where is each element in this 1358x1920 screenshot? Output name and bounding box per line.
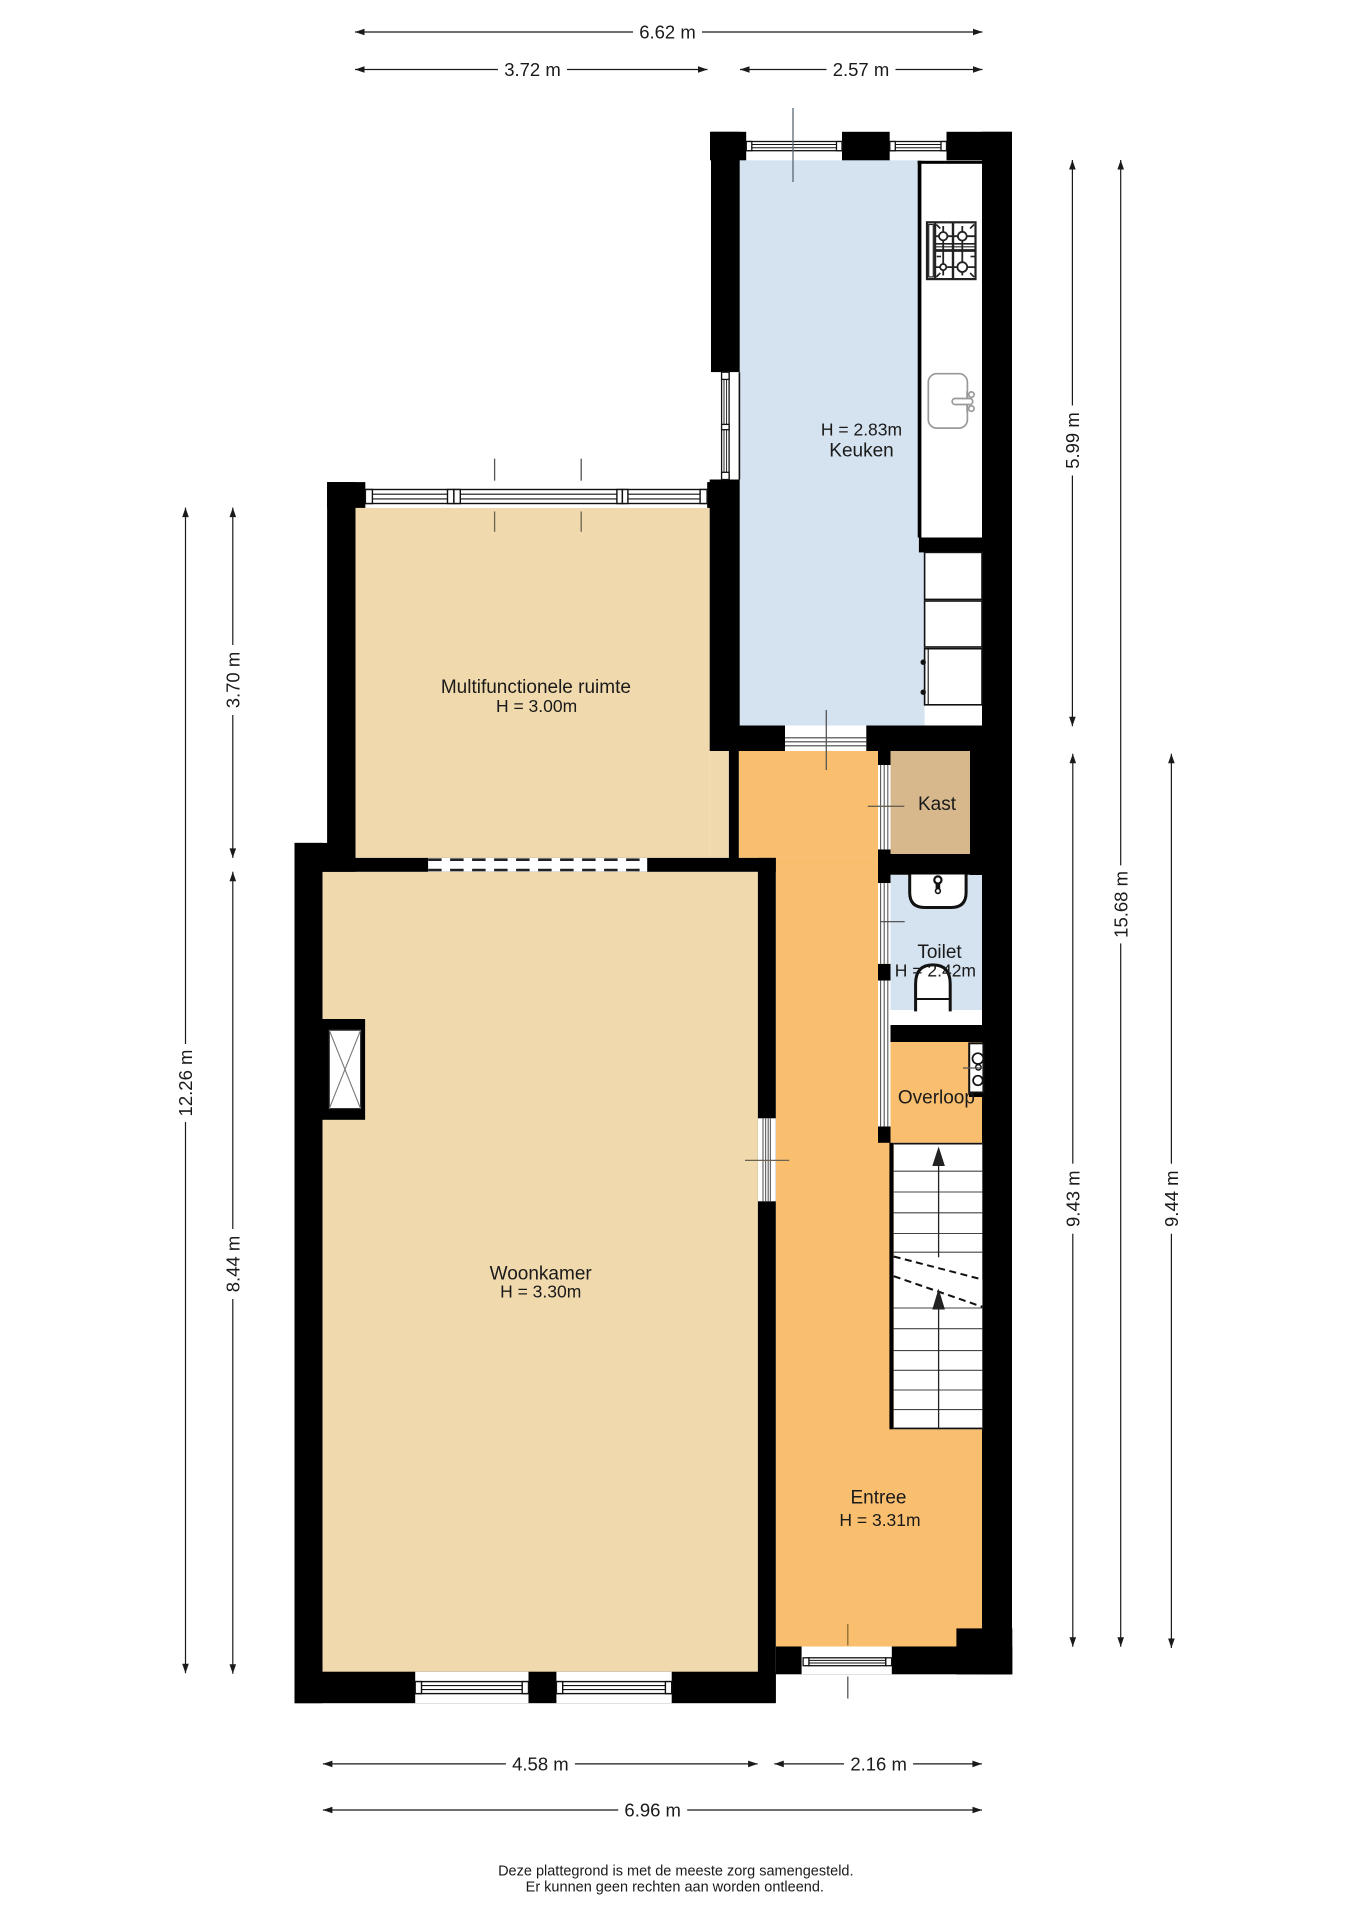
svg-text:3.70 m: 3.70 m <box>222 652 243 709</box>
svg-text:5.99 m: 5.99 m <box>1062 412 1083 469</box>
svg-text:9.43 m: 9.43 m <box>1062 1170 1083 1227</box>
svg-text:H = 2.42m: H = 2.42m <box>895 961 976 981</box>
svg-text:6.96 m: 6.96 m <box>624 1800 681 1821</box>
svg-text:H = 2.83m: H = 2.83m <box>821 420 902 440</box>
svg-text:Er kunnen geen rechten aan wor: Er kunnen geen rechten aan worden ontlee… <box>526 1879 824 1895</box>
svg-text:H = 3.00m: H = 3.00m <box>496 696 577 716</box>
svg-text:Deze plattegrond is met de mee: Deze plattegrond is met de meeste zorg s… <box>498 1863 853 1879</box>
svg-text:3.72 m: 3.72 m <box>504 59 561 80</box>
svg-text:2.16 m: 2.16 m <box>850 1754 907 1775</box>
svg-text:Multifunctionele ruimte: Multifunctionele ruimte <box>441 677 631 698</box>
svg-text:8.44 m: 8.44 m <box>222 1236 243 1293</box>
svg-text:H = 3.30m: H = 3.30m <box>500 1282 581 1302</box>
svg-text:Overloop: Overloop <box>898 1088 975 1109</box>
svg-text:H = 3.31m: H = 3.31m <box>839 1510 920 1530</box>
svg-text:9.44 m: 9.44 m <box>1161 1170 1182 1227</box>
svg-text:4.58 m: 4.58 m <box>512 1754 569 1775</box>
svg-text:2.57 m: 2.57 m <box>833 59 890 80</box>
svg-text:15.68 m: 15.68 m <box>1110 871 1131 938</box>
svg-text:Keuken: Keuken <box>829 441 893 462</box>
svg-text:6.62 m: 6.62 m <box>639 22 696 43</box>
svg-text:Entree: Entree <box>851 1488 907 1509</box>
svg-text:12.26 m: 12.26 m <box>175 1050 196 1117</box>
svg-text:Kast: Kast <box>918 794 957 815</box>
